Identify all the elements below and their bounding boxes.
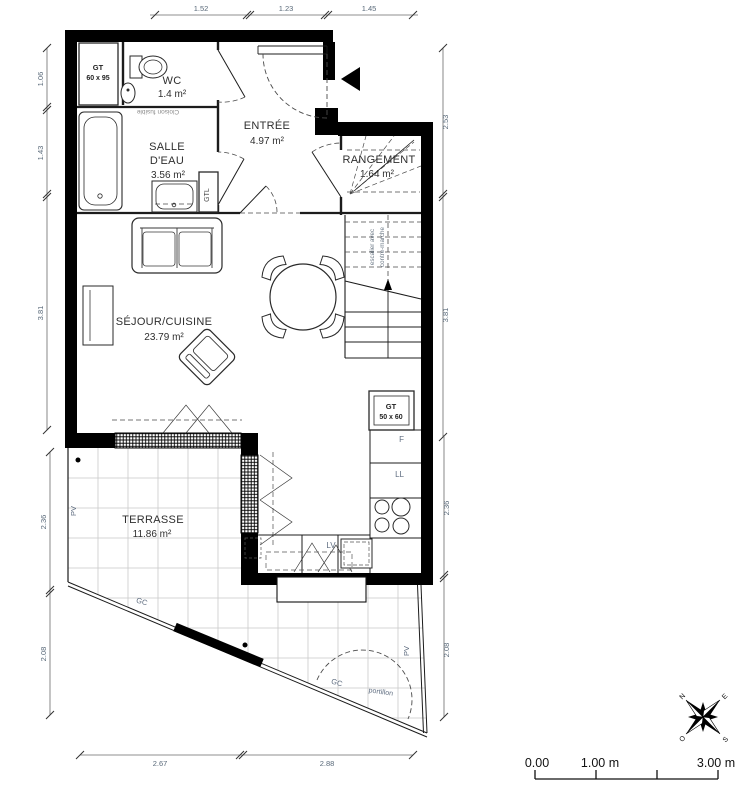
wall-entry-jamb bbox=[323, 42, 335, 80]
dim-bottom-2: 2.88 bbox=[320, 759, 335, 768]
stair-note-1: escalier avec bbox=[369, 229, 376, 265]
dining-table bbox=[270, 264, 336, 330]
pv-right-label: PV bbox=[402, 646, 411, 656]
hand-basin bbox=[121, 83, 135, 103]
wc-label: WC bbox=[163, 75, 182, 87]
dim-right-1: 2.53 bbox=[441, 115, 450, 130]
sde-door-leaf bbox=[218, 159, 244, 205]
wall-top bbox=[65, 30, 333, 42]
post-dot bbox=[243, 643, 248, 648]
fridge-label: F bbox=[399, 435, 404, 444]
hob-burner bbox=[375, 500, 389, 514]
wall-right bbox=[421, 122, 433, 585]
salle-deau-label-1: SALLE bbox=[149, 141, 185, 153]
window-swing-triangles-side bbox=[260, 455, 292, 545]
cloison-fusible-note: Cloison fusible bbox=[136, 108, 179, 115]
terrace-door-bay bbox=[277, 577, 366, 602]
stair-treads-solid bbox=[345, 284, 421, 358]
dim-top-2: 1.23 bbox=[279, 4, 294, 13]
compass-south-label: S bbox=[722, 736, 730, 744]
rangement-area: 1.64 m² bbox=[360, 169, 395, 180]
pv-left-label: PV bbox=[69, 506, 78, 516]
dim-right-4: 2.08 bbox=[442, 643, 451, 658]
glazed-facade bbox=[112, 405, 292, 548]
entree-area: 4.97 m² bbox=[250, 136, 285, 147]
fence-gate-post bbox=[175, 627, 262, 663]
entree-label: ENTRÉE bbox=[244, 119, 290, 132]
dim-left-2: 1.43 bbox=[36, 146, 45, 161]
hand-basin-tap bbox=[127, 89, 130, 92]
gc-upper-label: GC bbox=[135, 596, 149, 608]
furniture bbox=[83, 218, 349, 387]
compass-west-label: O bbox=[678, 734, 687, 743]
gt-kitchen-label-1: GT bbox=[386, 402, 397, 411]
sde-door-arc bbox=[218, 152, 244, 159]
wall-left bbox=[65, 30, 77, 448]
wall-terrace-corner-left bbox=[65, 433, 115, 448]
dim-bottom-1: 2.67 bbox=[153, 759, 168, 768]
drain-dot bbox=[76, 458, 81, 463]
stair-direction-arrow bbox=[384, 279, 392, 290]
scale-bar: 0.00 1.00 m 3.00 m bbox=[525, 756, 735, 779]
gt-shaft-wc bbox=[79, 43, 118, 105]
wall-band-bottom-cap bbox=[241, 533, 258, 585]
sejour-area: 23.79 m² bbox=[144, 332, 184, 343]
wall-band-top-cap bbox=[241, 433, 258, 455]
dim-left-3: 3.81 bbox=[36, 306, 45, 321]
wc-door-leaf bbox=[218, 50, 245, 97]
entrance-arrow-icon bbox=[341, 67, 360, 91]
sejour-label: SÉJOUR/CUISINE bbox=[116, 315, 213, 328]
wc-area: 1.4 m² bbox=[158, 89, 187, 100]
rangement-label: RANGEMENT bbox=[343, 154, 416, 166]
window-swing-triangles-top bbox=[163, 405, 232, 433]
hob-burner bbox=[392, 498, 410, 516]
dim-right-2: 3.81 bbox=[441, 308, 450, 323]
compass-rose-icon: N E S O bbox=[657, 671, 751, 765]
room-labels: WC 1.4 m² ENTRÉE 4.97 m² SALLE D'EAU 3.5… bbox=[116, 75, 416, 540]
sejour-door-leaf bbox=[240, 186, 266, 213]
gt-wc-label-1: GT bbox=[93, 63, 104, 72]
terrasse-label: TERRASSE bbox=[122, 514, 184, 526]
glazing-horizontal-band bbox=[115, 433, 241, 448]
cabinet-dash bbox=[266, 552, 352, 570]
washing-machine-label: LL bbox=[395, 470, 404, 479]
wall-rangement-top bbox=[338, 122, 433, 136]
kitchen-sink bbox=[341, 539, 372, 568]
gt-wc-label-2: 60 x 95 bbox=[86, 75, 109, 82]
stair-cut-line bbox=[345, 281, 421, 299]
bathtub-inner bbox=[84, 117, 117, 205]
portillon-label: portillon bbox=[368, 687, 393, 697]
sideboard bbox=[83, 286, 113, 345]
compass-north-label: N bbox=[679, 693, 688, 702]
glazing-vertical-band bbox=[241, 455, 258, 533]
terrace-right-edge bbox=[418, 585, 428, 733]
wc-door-arc bbox=[218, 97, 245, 102]
dim-left-4: 2.36 bbox=[39, 515, 48, 530]
salle-deau-area: 3.56 m² bbox=[151, 170, 186, 181]
dim-top-3: 1.45 bbox=[362, 4, 377, 13]
dim-left-5: 2.08 bbox=[39, 647, 48, 662]
scale-label-start: 0.00 bbox=[525, 756, 549, 770]
gt-kitchen-label-2: 50 x 60 bbox=[379, 414, 402, 421]
gtl-label: GTL bbox=[204, 188, 211, 202]
floor-plan-page: WC 1.4 m² ENTRÉE 4.97 m² SALLE D'EAU 3.5… bbox=[0, 0, 752, 800]
dim-left-1: 1.06 bbox=[36, 72, 45, 87]
hob-burner bbox=[375, 518, 389, 532]
floor-plan-drawing: WC 1.4 m² ENTRÉE 4.97 m² SALLE D'EAU 3.5… bbox=[0, 0, 752, 800]
scale-bar-line bbox=[535, 770, 718, 779]
dim-right-3: 2.36 bbox=[442, 501, 451, 516]
terrasse-area: 11.86 m² bbox=[133, 529, 172, 540]
dishwasher-label: LV bbox=[326, 541, 336, 550]
entrance-door bbox=[258, 46, 327, 118]
stair-note-2: contre-marche bbox=[379, 226, 386, 266]
dim-top-1: 1.52 bbox=[194, 4, 209, 13]
scale-label-mid: 1.00 m bbox=[581, 756, 619, 770]
compass-east-label: E bbox=[721, 692, 729, 700]
armchair bbox=[177, 327, 236, 386]
salle-deau-label-2: D'EAU bbox=[150, 155, 184, 167]
wall-corner-block bbox=[315, 108, 338, 135]
sejour-door-arc bbox=[266, 186, 277, 213]
rangement-door-arc bbox=[312, 143, 341, 152]
scale-label-end: 3.00 m bbox=[697, 756, 735, 770]
toilet-bowl-inner bbox=[144, 60, 162, 74]
rangement-door-leaf bbox=[312, 152, 341, 197]
gc-lower-label: GC bbox=[330, 677, 344, 689]
hob-burner bbox=[393, 518, 409, 534]
washbasin-inner bbox=[156, 184, 193, 209]
